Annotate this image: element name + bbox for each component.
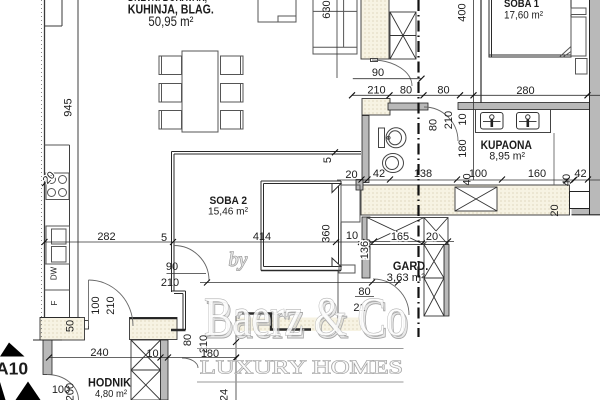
svg-text:360: 360 [321, 224, 333, 242]
svg-text:40: 40 [462, 173, 474, 185]
svg-text:3,63 m²: 3,63 m² [387, 272, 426, 284]
svg-text:DW: DW [50, 266, 59, 280]
svg-text:10: 10 [146, 348, 158, 360]
svg-text:414: 414 [253, 231, 271, 243]
svg-text:10: 10 [457, 113, 469, 125]
svg-text:630: 630 [321, 0, 333, 18]
svg-text:240: 240 [90, 347, 108, 359]
svg-text:A10: A10 [0, 359, 28, 379]
svg-text:160: 160 [528, 168, 546, 180]
svg-text:20: 20 [426, 231, 438, 243]
svg-text:90: 90 [372, 67, 384, 79]
svg-text:42: 42 [373, 168, 385, 180]
svg-text:282: 282 [97, 231, 115, 243]
svg-text:90: 90 [166, 261, 178, 273]
svg-text:80: 80 [437, 85, 449, 97]
svg-text:5: 5 [161, 232, 167, 244]
svg-text:5: 5 [322, 157, 334, 163]
svg-text:by: by [229, 249, 248, 271]
svg-text:210: 210 [161, 277, 179, 289]
svg-text:100: 100 [90, 296, 102, 314]
svg-text:210: 210 [367, 85, 385, 97]
svg-text:165: 165 [391, 231, 409, 243]
svg-text:SOBA 1: SOBA 1 [504, 0, 539, 10]
svg-text:50: 50 [65, 320, 77, 332]
svg-text:200: 200 [65, 383, 77, 400]
svg-text:10: 10 [346, 230, 358, 242]
svg-text:400: 400 [457, 3, 469, 21]
svg-text:20: 20 [345, 169, 357, 181]
svg-text:210: 210 [105, 296, 117, 314]
svg-text:LUXURY HOMES: LUXURY HOMES [200, 358, 403, 379]
svg-text:80: 80 [428, 119, 440, 131]
svg-text:24: 24 [219, 389, 231, 400]
svg-text:180: 180 [457, 139, 469, 157]
svg-text:42: 42 [574, 168, 586, 180]
svg-text:136: 136 [359, 241, 371, 259]
svg-text:80: 80 [400, 85, 412, 97]
svg-text:280: 280 [516, 85, 534, 97]
svg-text:50,95 m²: 50,95 m² [148, 14, 193, 29]
svg-text:SOBA 2: SOBA 2 [210, 195, 248, 207]
svg-text:17,60 m²: 17,60 m² [504, 10, 543, 22]
svg-text:GARD.: GARD. [393, 261, 428, 273]
svg-text:20: 20 [549, 204, 561, 216]
svg-text:4,80 m²: 4,80 m² [95, 388, 127, 400]
svg-text:945: 945 [63, 98, 75, 116]
svg-text:15,46 m²: 15,46 m² [208, 207, 249, 218]
svg-text:8,95 m²: 8,95 m² [489, 150, 525, 162]
svg-text:210: 210 [443, 111, 455, 129]
svg-text:138: 138 [414, 168, 432, 180]
svg-text:F: F [50, 300, 59, 305]
svg-text:80: 80 [182, 334, 194, 346]
svg-text:40: 40 [561, 174, 573, 186]
svg-text:Baerz & Co: Baerz & Co [204, 286, 407, 347]
